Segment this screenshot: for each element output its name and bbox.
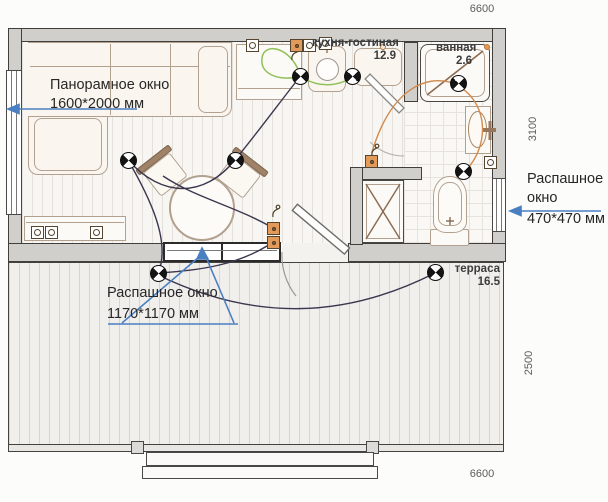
switch-icon	[273, 48, 379, 217]
power-socket-icon	[484, 156, 497, 169]
ceiling-light-icon	[455, 163, 472, 180]
power-socket-icon	[90, 226, 103, 239]
power-socket-icon	[45, 226, 58, 239]
annotation-line: 1170*1170 мм	[107, 304, 218, 325]
bathroom-door-leaf	[365, 74, 404, 113]
room-area-bathroom: 2.6	[436, 55, 472, 68]
annotation-line: окно	[527, 189, 605, 208]
arrowhead	[197, 248, 208, 259]
arrowhead	[510, 207, 521, 216]
annotation-line: 1600*2000 мм	[50, 95, 169, 114]
power-socket-icon	[290, 39, 303, 52]
room-area-kitchen-living: 12.9	[312, 50, 396, 63]
annotation-line: 470*470 мм	[527, 210, 605, 229]
power-socket-icon	[246, 39, 259, 52]
ceiling-light-icon	[292, 68, 309, 85]
annotation-panoramic-window: Панорамное окно 1600*2000 мм	[50, 76, 169, 114]
ceiling-light-icon	[427, 264, 444, 281]
ceiling-light-icon	[120, 152, 137, 169]
room-label-terrace: терраса	[452, 263, 500, 276]
annotation-line: Распашное окно	[107, 283, 218, 304]
annotation-line: Распашное	[527, 170, 605, 189]
ceiling-light-icon	[150, 265, 167, 282]
annotation-casement-window-terrace: Распашное окно 1170*1170 мм	[107, 283, 218, 324]
dimension-right-upper: 3100	[527, 107, 539, 151]
room-label-bathroom: ванная	[436, 42, 482, 55]
room-label-kitchen-living: кухня-гостиная	[312, 37, 408, 50]
power-socket-icon	[267, 236, 280, 249]
ceiling-light-icon	[450, 75, 467, 92]
room-area-terrace: 16.5	[452, 276, 500, 289]
arrowhead	[8, 105, 19, 114]
power-socket-icon	[267, 222, 280, 235]
wiring-dark	[128, 78, 433, 309]
power-socket-icon	[365, 155, 378, 168]
power-socket-icon	[31, 226, 44, 239]
floor-plan: 6600 6600 3100 2500 кухня-гостиная 12.9 …	[0, 0, 608, 502]
annotation-line: Панорамное окно	[50, 76, 169, 95]
terrace-door-leaf	[292, 204, 349, 254]
dimension-bottom: 6600	[452, 468, 512, 480]
dimension-right-lower: 2500	[523, 341, 535, 385]
dimension-top: 6600	[452, 3, 512, 15]
ceiling-light-icon	[227, 152, 244, 169]
terrace-door-swing	[282, 252, 296, 296]
ceiling-light-icon	[344, 68, 361, 85]
annotation-casement-window-small: Распашное окно 470*470 мм	[527, 170, 605, 229]
